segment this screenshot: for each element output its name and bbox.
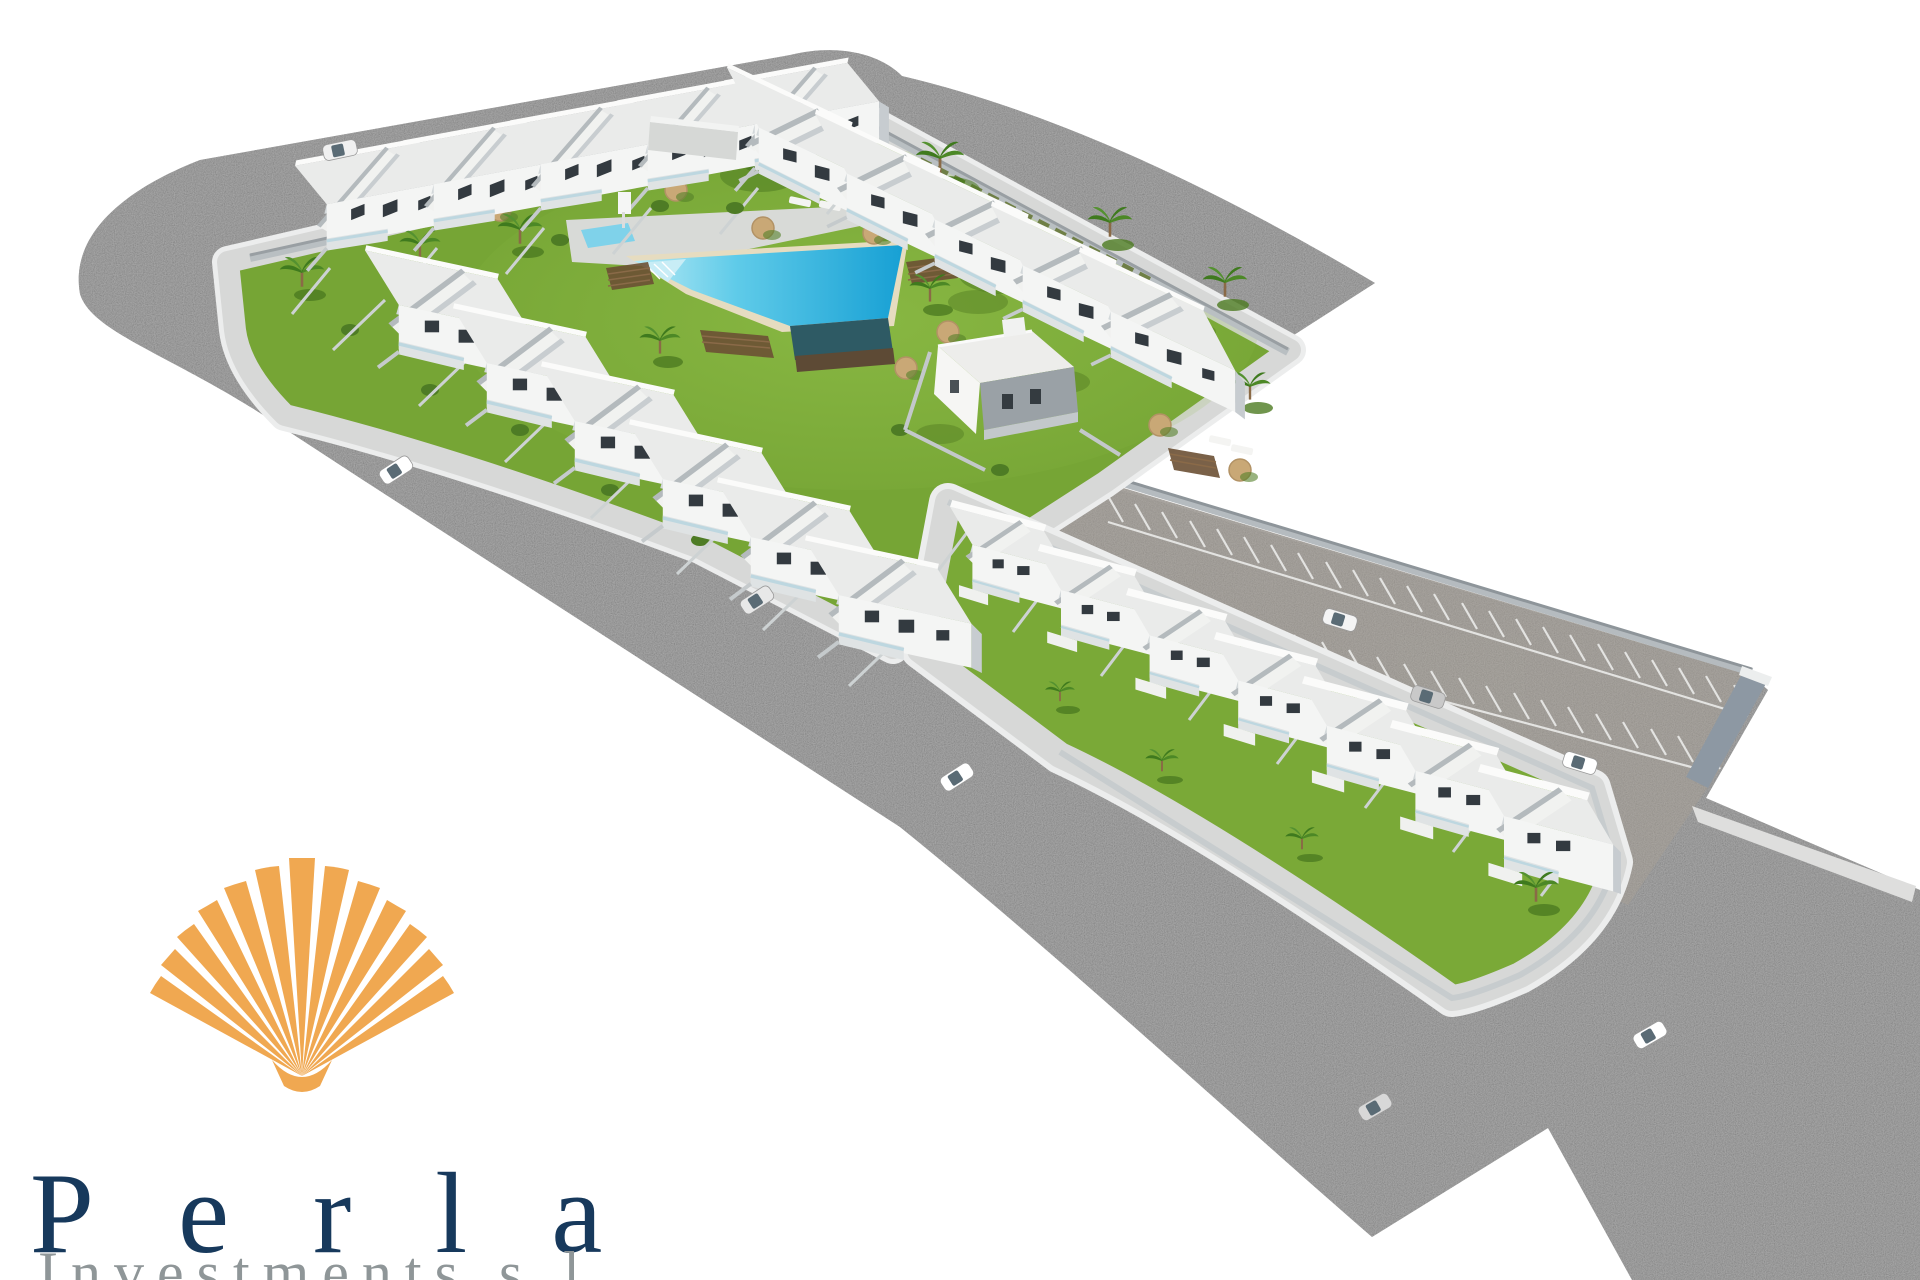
svg-text:Investments s.l: Investments s.l (38, 1240, 593, 1280)
